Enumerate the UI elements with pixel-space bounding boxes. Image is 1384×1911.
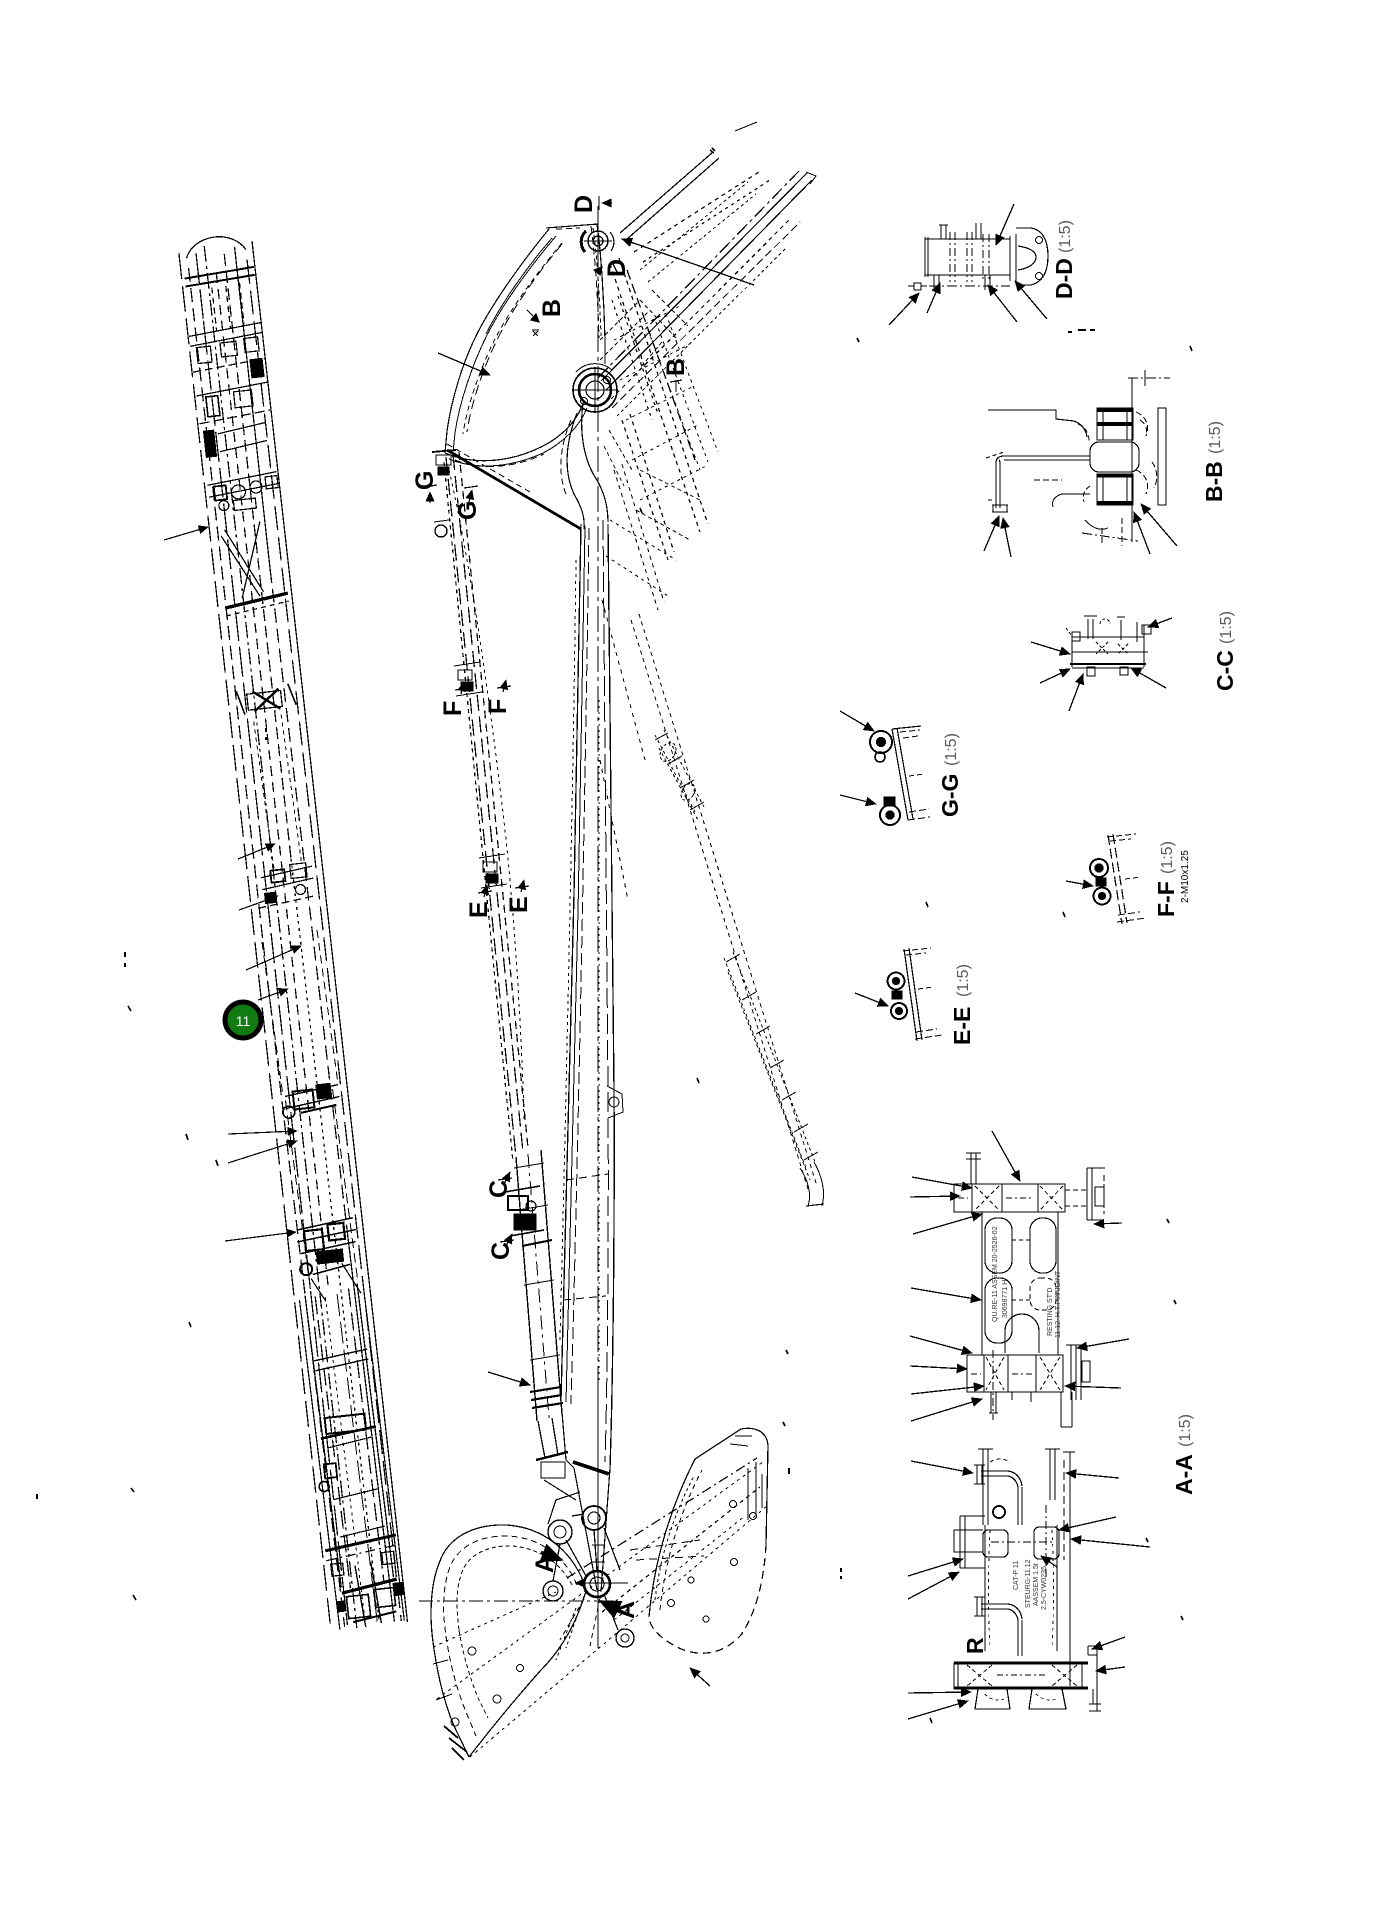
svg-text:C: C — [485, 1180, 513, 1198]
svg-text:E: E — [465, 901, 493, 918]
svg-text:R: R — [962, 1637, 988, 1654]
svg-text:D: D — [603, 259, 631, 277]
svg-text:30698771 H: 30698771 H — [1002, 1280, 1009, 1318]
svg-text:C: C — [487, 1242, 515, 1260]
svg-text:(1:5): (1:5) — [1057, 220, 1074, 253]
svg-text:(1:5): (1:5) — [1159, 841, 1176, 874]
svg-text:2.5-CYW0235: 2.5-CYW0235 — [1041, 1566, 1048, 1610]
svg-text:D-D: D-D — [1051, 258, 1077, 299]
svg-text:STEURG-11.12: STEURG-11.12 — [1025, 1559, 1032, 1608]
svg-text:(1:5): (1:5) — [1218, 611, 1235, 644]
svg-text:C-C: C-C — [1212, 650, 1238, 691]
svg-text:11: 11 — [236, 1013, 251, 1029]
svg-text:A-A: A-A — [1171, 1454, 1197, 1495]
svg-text:G: G — [454, 501, 482, 520]
svg-text:(1:5): (1:5) — [1177, 1414, 1194, 1447]
svg-text:AASSEM 1.5t: AASSEM 1.5t — [1033, 1563, 1040, 1606]
svg-text:B: B — [662, 358, 690, 376]
svg-text:F: F — [439, 701, 467, 716]
svg-text:QU.RE-11 ASSEM 20-2526-02: QU.RE-11 ASSEM 20-2526-02 — [992, 1226, 999, 1322]
svg-text:11.12. H.T.PIN JOINT: 11.12. H.T.PIN JOINT — [1055, 1270, 1062, 1338]
svg-text:D: D — [570, 195, 598, 213]
svg-text:CAT-P 11: CAT-P 11 — [1013, 1561, 1020, 1590]
svg-text:B-B: B-B — [1201, 461, 1227, 502]
svg-text:E-E: E-E — [949, 1007, 975, 1045]
svg-text:F-F: F-F — [1153, 881, 1179, 917]
svg-text:G-G: G-G — [937, 774, 963, 817]
svg-text:F: F — [484, 699, 512, 714]
svg-text:(1:5): (1:5) — [943, 733, 960, 766]
svg-text:E: E — [505, 896, 533, 913]
svg-text:2-M10x1.25: 2-M10x1.25 — [1180, 850, 1191, 903]
svg-text:B: B — [538, 299, 566, 317]
svg-text:(1:5): (1:5) — [1207, 421, 1224, 454]
svg-text:(1:5): (1:5) — [955, 964, 972, 997]
svg-text:RESTING ST'D: RESTING ST'D — [1047, 1288, 1054, 1336]
